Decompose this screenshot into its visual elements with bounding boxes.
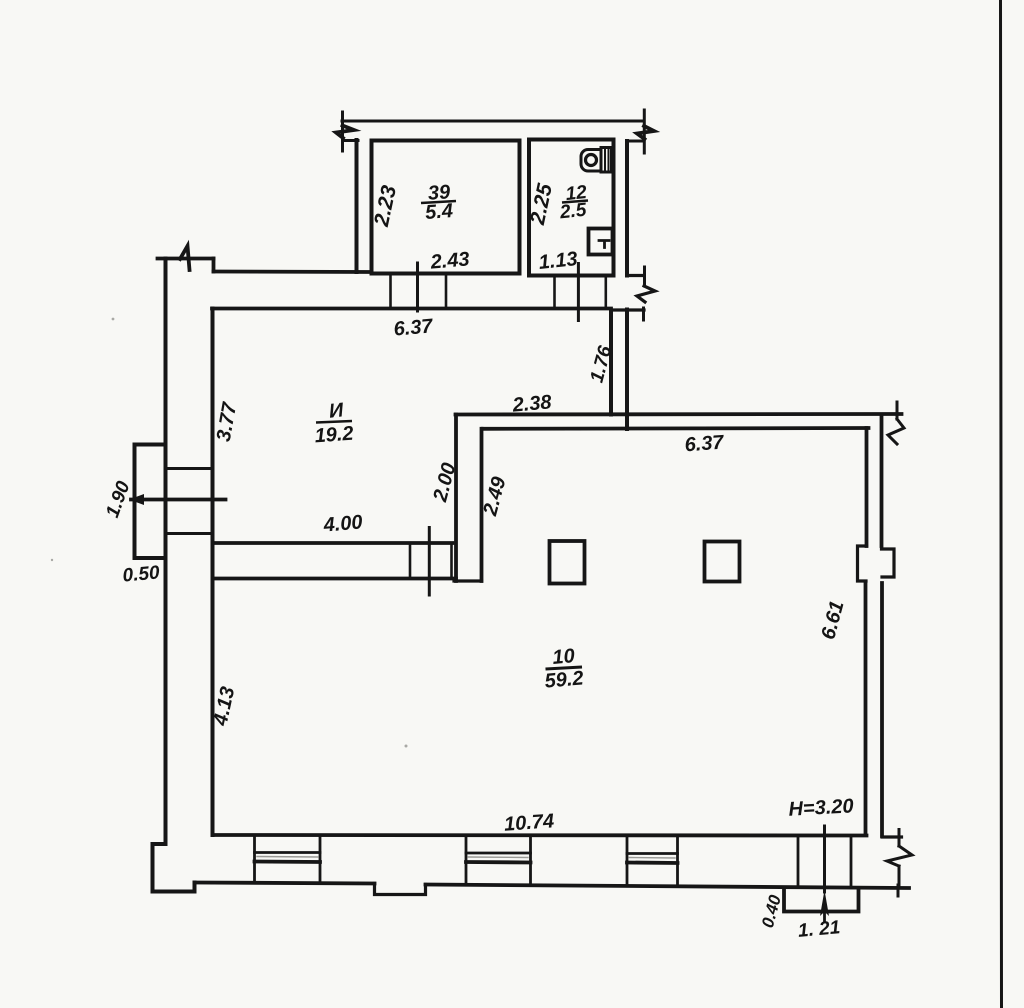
svg-text:2.43: 2.43: [429, 248, 471, 273]
svg-text:2.23: 2.23: [370, 183, 401, 229]
svg-text:6.37: 6.37: [684, 432, 725, 457]
svg-text:И: И: [328, 399, 345, 422]
svg-text:59.2: 59.2: [544, 667, 585, 692]
svg-text:4.00: 4.00: [322, 511, 364, 536]
svg-text:10.74: 10.74: [503, 810, 554, 835]
svg-text:3.77: 3.77: [213, 400, 242, 443]
svg-text:2.38: 2.38: [511, 391, 554, 416]
svg-text:6.61: 6.61: [817, 599, 848, 642]
svg-text:H=3.20: H=3.20: [788, 795, 854, 820]
svg-text:19.2: 19.2: [314, 423, 354, 448]
svg-text:6.37: 6.37: [393, 315, 435, 340]
svg-text:0.40: 0.40: [758, 892, 785, 929]
svg-text:2.49: 2.49: [479, 474, 511, 519]
svg-text:1. 21: 1. 21: [797, 917, 841, 942]
svg-text:10: 10: [552, 645, 576, 669]
svg-text:1.13: 1.13: [538, 248, 579, 274]
svg-text:0.50: 0.50: [122, 562, 161, 586]
